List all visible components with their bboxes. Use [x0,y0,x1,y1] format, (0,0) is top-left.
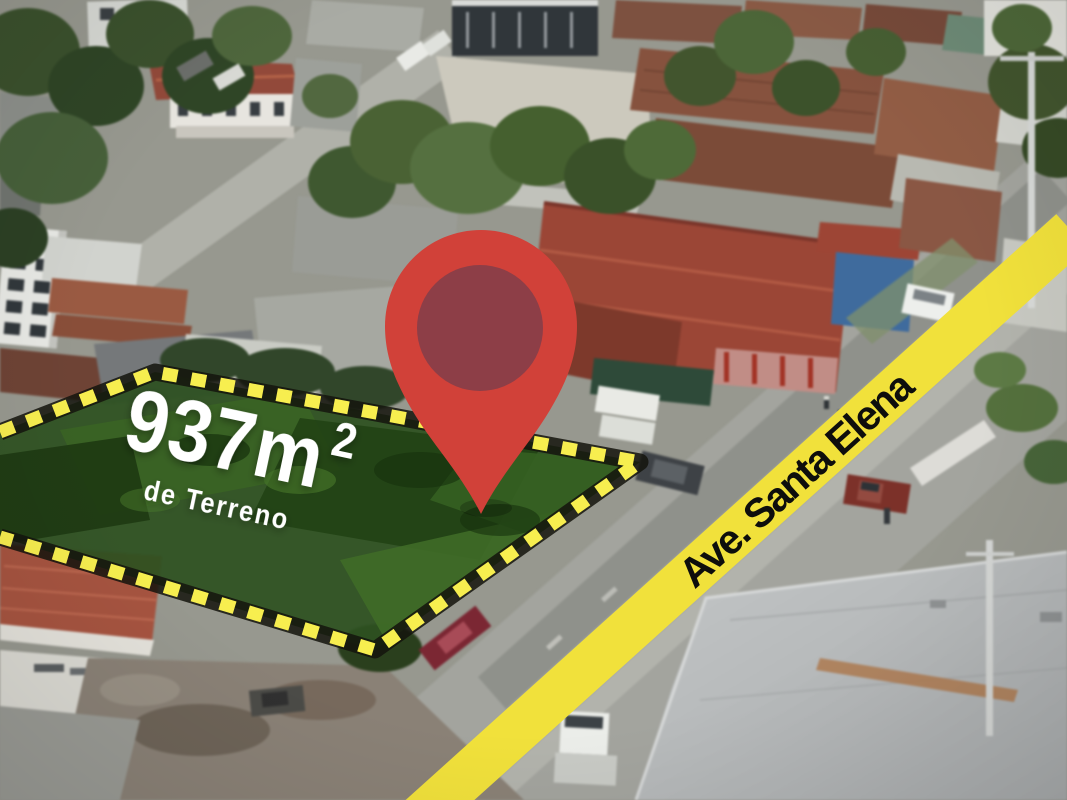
window [250,102,260,116]
tree-canopy [772,60,840,116]
pedestrian-head [824,396,829,400]
tree-canopy [624,120,696,180]
real-estate-aerial-flyer: Ave. Santa Elena 937m 2 de Terreno [0,0,1067,800]
gray-roof [306,0,424,52]
pedestrian [884,508,890,524]
tree-canopy [846,28,906,76]
dirt-patch [100,674,180,706]
pole-crossarm [1000,56,1064,61]
bush [974,352,1026,388]
tree-canopy [714,10,794,74]
tree-canopy [212,6,292,66]
pavement [0,706,140,800]
pin-inner-circle [417,265,543,391]
house-base [176,126,294,138]
pole-crossarm [966,552,1014,556]
bush [986,384,1058,432]
mud-patch [130,704,270,756]
utility-pole [986,540,993,736]
aerial-photo: Ave. Santa Elena 937m 2 de Terreno [0,0,1067,800]
dark-office-building [452,0,598,56]
window [274,102,284,116]
tree-canopy [0,112,108,204]
tree-canopy [992,4,1052,52]
tree-canopy [302,74,358,118]
